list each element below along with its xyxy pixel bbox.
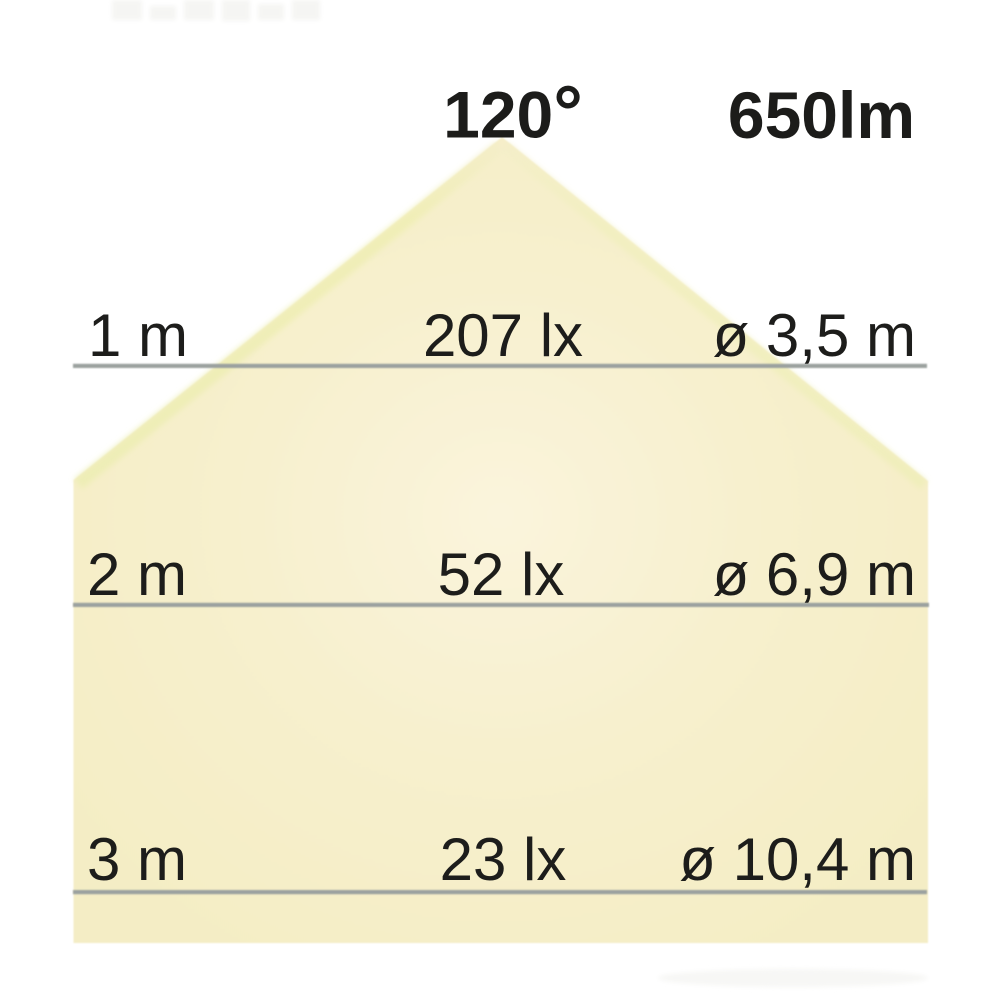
svg-text:3 m: 3 m <box>87 826 187 893</box>
svg-text:ø 3,5 m: ø 3,5 m <box>713 302 916 369</box>
svg-text:207 lx: 207 lx <box>423 302 583 369</box>
svg-text:650lm: 650lm <box>728 78 915 152</box>
svg-text:120°: 120° <box>443 71 583 154</box>
svg-text:ø 6,9 m: ø 6,9 m <box>713 541 916 608</box>
svg-text:ø 10,4 m: ø 10,4 m <box>679 826 916 893</box>
svg-text:1 m: 1 m <box>88 302 188 369</box>
svg-text:2 m: 2 m <box>87 541 187 608</box>
svg-text:23 lx: 23 lx <box>440 826 567 893</box>
svg-text:52 lx: 52 lx <box>438 541 565 608</box>
